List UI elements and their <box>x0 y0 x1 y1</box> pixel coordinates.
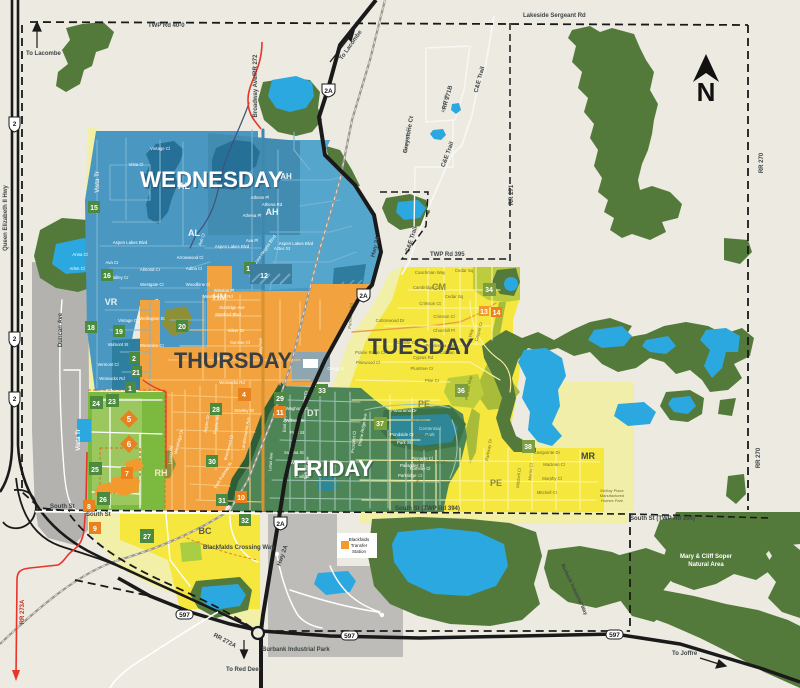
svg-text:2: 2 <box>132 356 136 363</box>
svg-text:6: 6 <box>127 440 132 449</box>
svg-text:Coachman Way: Coachman Way <box>415 270 446 275</box>
svg-text:21: 21 <box>132 370 140 377</box>
svg-text:AL: AL <box>178 181 190 191</box>
svg-text:South St: South St <box>86 512 111 518</box>
svg-text:Vista Tr: Vista Tr <box>95 171 101 193</box>
svg-text:RR 270: RR 270 <box>759 152 765 173</box>
svg-text:RH: RH <box>155 468 168 478</box>
svg-text:Park St: Park St <box>397 440 412 445</box>
svg-text:597: 597 <box>179 612 190 619</box>
svg-text:29: 29 <box>276 396 284 403</box>
svg-text:Vintage Cl: Vintage Cl <box>118 318 138 323</box>
svg-text:Womacks Rd: Womacks Rd <box>219 380 245 385</box>
svg-text:34: 34 <box>485 287 493 294</box>
svg-text:WEDNESDAY: WEDNESDAY <box>140 167 283 192</box>
svg-text:25: 25 <box>91 467 99 474</box>
svg-text:9: 9 <box>93 526 97 533</box>
svg-text:Cedar Sq: Cedar Sq <box>455 268 474 273</box>
svg-text:Indiana St: Indiana St <box>284 450 304 455</box>
svg-text:Woodbine Cl: Woodbine Cl <box>186 282 211 287</box>
svg-text:Panorama Dr: Panorama Dr <box>391 408 417 413</box>
svg-text:33: 33 <box>318 388 326 395</box>
svg-text:12: 12 <box>260 273 268 280</box>
svg-text:597: 597 <box>344 633 355 640</box>
svg-text:Crimson Ct: Crimson Ct <box>419 301 441 306</box>
svg-text:Willson St: Willson St <box>285 418 305 423</box>
svg-text:Pondside Cr: Pondside Cr <box>390 432 414 437</box>
svg-text:Murphy Cl: Murphy Cl <box>542 476 562 481</box>
svg-text:38: 38 <box>524 444 532 451</box>
svg-text:Ava Cr: Ava Cr <box>105 260 119 265</box>
svg-text:AH: AH <box>266 207 279 217</box>
svg-text:2: 2 <box>13 396 17 403</box>
svg-text:Queen Elizabeth II Hwy: Queen Elizabeth II Hwy <box>3 185 9 251</box>
svg-text:15: 15 <box>90 205 98 212</box>
svg-text:Pine Cr: Pine Cr <box>425 378 440 383</box>
svg-text:Stanford Blvd: Stanford Blvd <box>215 312 241 317</box>
svg-text:Almond Cr: Almond Cr <box>140 267 161 272</box>
svg-text:Aztec St: Aztec St <box>274 246 291 251</box>
svg-text:Mary & Cliff Soper: Mary & Cliff Soper <box>680 554 733 560</box>
svg-text:Valley Cr: Valley Cr <box>111 275 129 280</box>
svg-text:32: 32 <box>241 518 249 525</box>
svg-text:CM: CM <box>432 282 446 292</box>
svg-text:Ava Pl: Ava Pl <box>246 238 258 243</box>
svg-text:TWP Rd 40-0: TWP Rd 40-0 <box>148 23 185 29</box>
svg-text:To Joffre: To Joffre <box>672 651 698 657</box>
svg-text:8: 8 <box>87 504 91 511</box>
svg-text:Cottonwood Dr: Cottonwood Dr <box>376 318 405 323</box>
svg-text:14: 14 <box>493 310 501 317</box>
svg-text:Piper Cl: Piper Cl <box>414 433 429 438</box>
svg-text:7: 7 <box>125 471 129 478</box>
svg-text:DT: DT <box>307 408 319 418</box>
svg-text:Natural Area: Natural Area <box>688 562 724 568</box>
svg-text:To Red Deer: To Red Deer <box>226 667 262 673</box>
svg-text:THURSDAY: THURSDAY <box>174 348 292 373</box>
svg-text:RR 273A: RR 273A <box>20 599 26 624</box>
svg-text:TUESDAY: TUESDAY <box>368 334 474 359</box>
svg-text:Silver Dr: Silver Dr <box>228 328 245 333</box>
svg-text:37: 37 <box>376 421 384 428</box>
svg-text:Broadway Ave/RR 272: Broadway Ave/RR 272 <box>253 54 259 118</box>
svg-text:Palmer Circle: Palmer Circle <box>421 460 447 465</box>
svg-text:Sunridge Ave: Sunridge Ave <box>219 305 245 310</box>
svg-text:24: 24 <box>92 401 100 408</box>
svg-text:BC: BC <box>199 526 212 536</box>
svg-text:Athens Pl: Athens Pl <box>251 195 269 200</box>
svg-text:Valmont St: Valmont St <box>108 342 130 347</box>
svg-text:Vintage Cl: Vintage Cl <box>150 146 170 151</box>
svg-text:2A: 2A <box>359 293 368 300</box>
svg-text:28: 28 <box>212 407 220 414</box>
svg-text:RR 270: RR 270 <box>756 447 762 468</box>
svg-text:Vista Tr: Vista Tr <box>76 429 82 451</box>
svg-text:Blackfalds Crossing Way: Blackfalds Crossing Way <box>203 545 275 551</box>
svg-text:RR 271: RR 271 <box>509 184 515 205</box>
svg-text:AL: AL <box>188 228 200 238</box>
svg-text:Arlen Cl: Arlen Cl <box>69 266 84 271</box>
svg-text:Aspen Lakes Blvd: Aspen Lakes Blvd <box>215 244 250 249</box>
svg-text:FRIDAY: FRIDAY <box>293 456 373 481</box>
svg-text:Homes Park: Homes Park <box>601 498 623 503</box>
svg-text:Centennial: Centennial <box>419 426 441 431</box>
svg-text:23: 23 <box>108 399 116 406</box>
svg-text:Westview Cr: Westview Cr <box>140 343 165 348</box>
svg-text:South St: South St <box>50 504 75 510</box>
svg-text:VR: VR <box>105 297 118 307</box>
svg-text:HM: HM <box>213 292 227 302</box>
svg-text:Eastpointe Dr: Eastpointe Dr <box>534 450 561 455</box>
svg-text:1: 1 <box>128 386 132 393</box>
svg-text:27: 27 <box>143 534 151 541</box>
svg-text:Cedar Sq: Cedar Sq <box>445 294 464 299</box>
svg-text:11: 11 <box>276 410 284 417</box>
svg-text:2A: 2A <box>276 521 285 528</box>
svg-text:36: 36 <box>457 388 465 395</box>
svg-text:2A: 2A <box>324 88 333 95</box>
svg-text:Sunrise Cl: Sunrise Cl <box>230 340 250 345</box>
svg-text:Churchill Pl: Churchill Pl <box>433 328 455 333</box>
svg-text:19: 19 <box>115 329 123 336</box>
svg-text:To Lacombe: To Lacombe <box>26 51 62 57</box>
svg-text:30: 30 <box>208 459 216 466</box>
svg-text:MR: MR <box>581 451 595 461</box>
svg-text:Aspen Lakes Blvd: Aspen Lakes Blvd <box>113 240 148 245</box>
svg-text:Womacks Rd: Womacks Rd <box>99 376 125 381</box>
svg-text:Eastpointe Dr: Eastpointe Dr <box>414 446 441 451</box>
svg-text:20: 20 <box>178 324 186 331</box>
svg-text:Maclean Cl: Maclean Cl <box>543 462 565 467</box>
svg-text:Wellington St: Wellington St <box>139 316 165 321</box>
svg-text:Arrowwood Cl: Arrowwood Cl <box>177 255 204 260</box>
svg-text:31: 31 <box>218 498 226 505</box>
svg-text:597: 597 <box>609 632 620 639</box>
svg-text:Adina Cl: Adina Cl <box>186 266 202 271</box>
svg-text:Blackfalds: Blackfalds <box>349 537 370 542</box>
svg-text:2: 2 <box>13 336 17 343</box>
svg-text:N: N <box>697 77 716 107</box>
svg-text:13: 13 <box>480 309 488 316</box>
svg-text:Westgate Cr: Westgate Cr <box>140 282 164 287</box>
svg-text:Plumtree Cr: Plumtree Cr <box>411 366 434 371</box>
svg-text:South St (TWP Rd 394): South St (TWP Rd 394) <box>395 506 460 512</box>
svg-text:16: 16 <box>103 273 111 280</box>
svg-text:2: 2 <box>13 121 17 128</box>
svg-text:Anna Cl: Anna Cl <box>72 252 87 257</box>
svg-text:PE: PE <box>418 399 430 409</box>
svg-text:10: 10 <box>237 495 245 502</box>
svg-text:Vermont Cl: Vermont Cl <box>97 362 118 367</box>
svg-text:Crimson Cl: Crimson Cl <box>433 314 454 319</box>
svg-text:Burbank Industrial Park: Burbank Industrial Park <box>262 647 330 653</box>
svg-text:4: 4 <box>242 392 246 399</box>
svg-text:Pinetree Cl: Pinetree Cl <box>411 418 432 423</box>
svg-text:Pinewood Cl: Pinewood Cl <box>356 360 380 365</box>
svg-text:5: 5 <box>127 415 132 424</box>
svg-text:Gregg St: Gregg St <box>327 366 345 371</box>
svg-text:Stanley St: Stanley St <box>234 408 254 413</box>
svg-text:Transfer: Transfer <box>351 543 368 548</box>
svg-text:18: 18 <box>87 325 95 332</box>
svg-text:Lakeside Sergeant Rd: Lakeside Sergeant Rd <box>523 13 586 19</box>
svg-text:AH: AH <box>280 172 292 181</box>
svg-text:Station: Station <box>352 549 367 554</box>
svg-text:South St (TWP Rd 394): South St (TWP Rd 394) <box>630 516 695 522</box>
svg-text:26: 26 <box>99 497 107 504</box>
svg-text:Duncan Ave: Duncan Ave <box>58 312 64 347</box>
svg-text:Athena Pl: Athena Pl <box>243 213 262 218</box>
svg-text:Mitchell Cr: Mitchell Cr <box>537 490 558 495</box>
svg-text:TWP Rd 395: TWP Rd 395 <box>430 252 465 258</box>
svg-text:PE: PE <box>490 478 502 488</box>
